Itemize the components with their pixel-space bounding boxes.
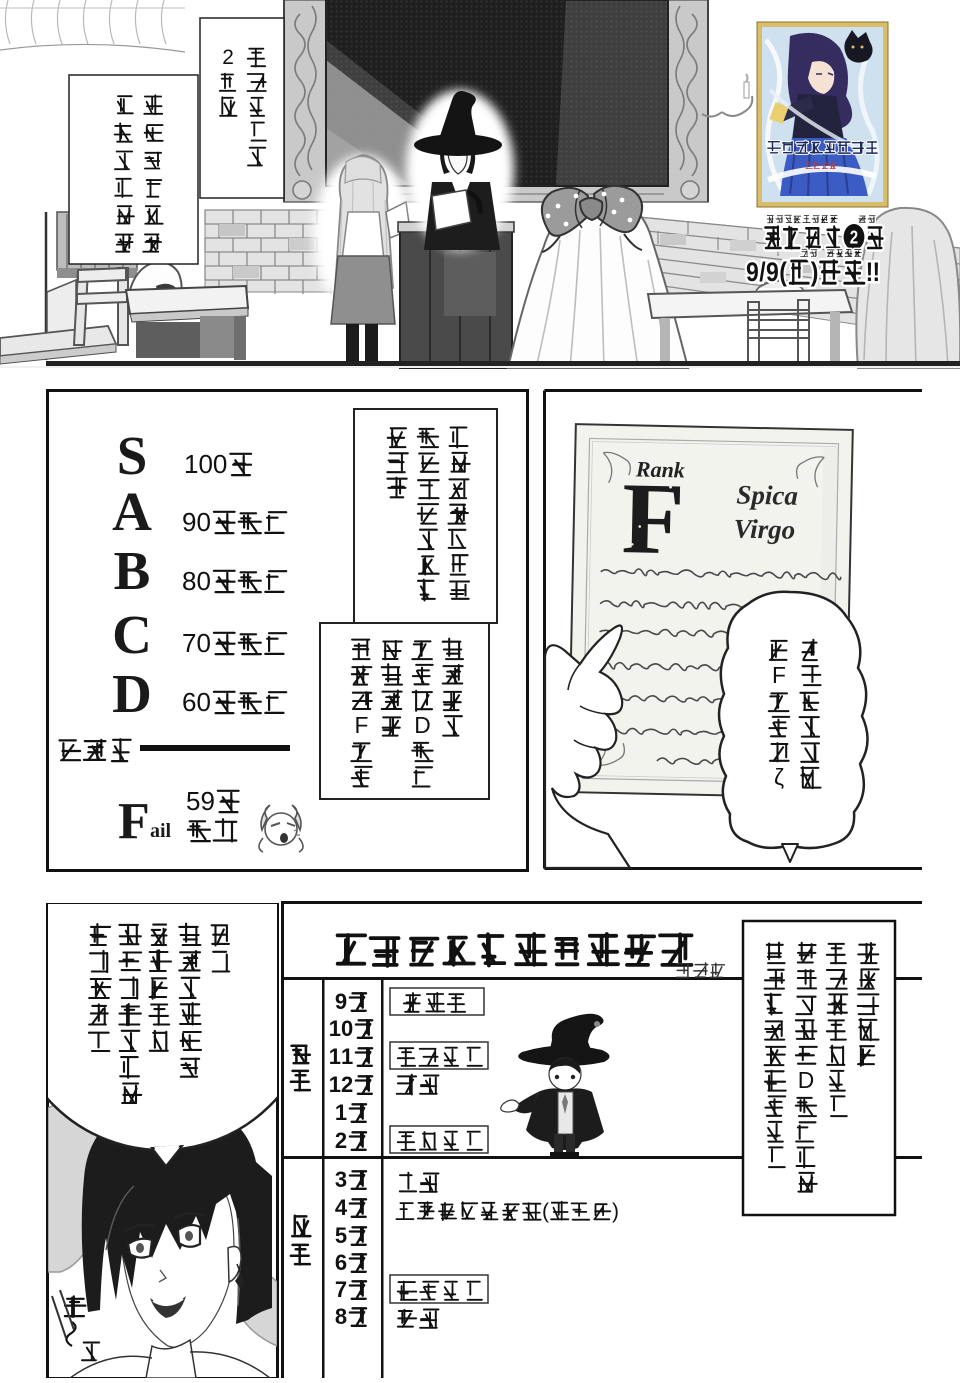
svg-text:9: 9 — [746, 257, 759, 287]
svg-text:1: 1 — [335, 1100, 347, 1125]
svg-text:D: D — [112, 663, 152, 724]
svg-text:2: 2 — [850, 227, 858, 248]
svg-text:9: 9 — [201, 786, 215, 816]
svg-text:1: 1 — [341, 1044, 353, 1069]
svg-text:): ) — [612, 1200, 619, 1223]
svg-text:2: 2 — [222, 46, 234, 69]
svg-text:/: / — [759, 257, 765, 287]
svg-text:0: 0 — [199, 449, 213, 479]
svg-text:B: B — [114, 540, 151, 601]
svg-text:S: S — [117, 425, 148, 486]
svg-text:6: 6 — [335, 1250, 347, 1275]
svg-text:2: 2 — [335, 1128, 347, 1153]
svg-text:8: 8 — [182, 566, 196, 596]
svg-text:0: 0 — [197, 687, 211, 717]
svg-text:7: 7 — [182, 628, 196, 658]
svg-text:2: 2 — [341, 1072, 353, 1097]
svg-text:1: 1 — [329, 1016, 341, 1041]
svg-text:(: ( — [779, 257, 787, 287]
svg-text:9: 9 — [766, 257, 779, 287]
svg-text:C: C — [112, 604, 152, 665]
svg-text:0: 0 — [197, 628, 211, 658]
svg-text:1: 1 — [329, 1044, 341, 1069]
svg-text:F: F — [118, 793, 150, 850]
svg-text:6: 6 — [182, 687, 196, 717]
svg-text:4: 4 — [335, 1195, 348, 1220]
svg-text:5: 5 — [335, 1223, 347, 1248]
svg-text:0: 0 — [213, 449, 227, 479]
svg-text:!: ! — [873, 257, 881, 287]
svg-text:Virgo: Virgo — [733, 513, 795, 544]
svg-text:0: 0 — [341, 1016, 353, 1041]
svg-text:F: F — [355, 712, 369, 738]
svg-text:0: 0 — [197, 507, 211, 537]
svg-text:1: 1 — [184, 449, 198, 479]
svg-text:9: 9 — [182, 507, 196, 537]
svg-text:8: 8 — [335, 1304, 347, 1329]
svg-text:3: 3 — [335, 1167, 347, 1192]
svg-text:D: D — [798, 1067, 814, 1093]
svg-text:A: A — [112, 481, 152, 542]
svg-text:Spica: Spica — [736, 480, 798, 511]
svg-text:0: 0 — [197, 566, 211, 596]
svg-text:ζ: ζ — [774, 764, 784, 790]
svg-text:(: ( — [542, 1200, 549, 1223]
svg-text:1: 1 — [329, 1072, 341, 1097]
svg-text:9: 9 — [335, 989, 347, 1014]
svg-text:ail: ail — [150, 820, 172, 842]
svg-text:F: F — [621, 462, 686, 576]
svg-text:D: D — [414, 712, 430, 738]
svg-text:7: 7 — [335, 1277, 347, 1302]
svg-text:5: 5 — [186, 786, 200, 816]
svg-text:F: F — [772, 662, 786, 688]
